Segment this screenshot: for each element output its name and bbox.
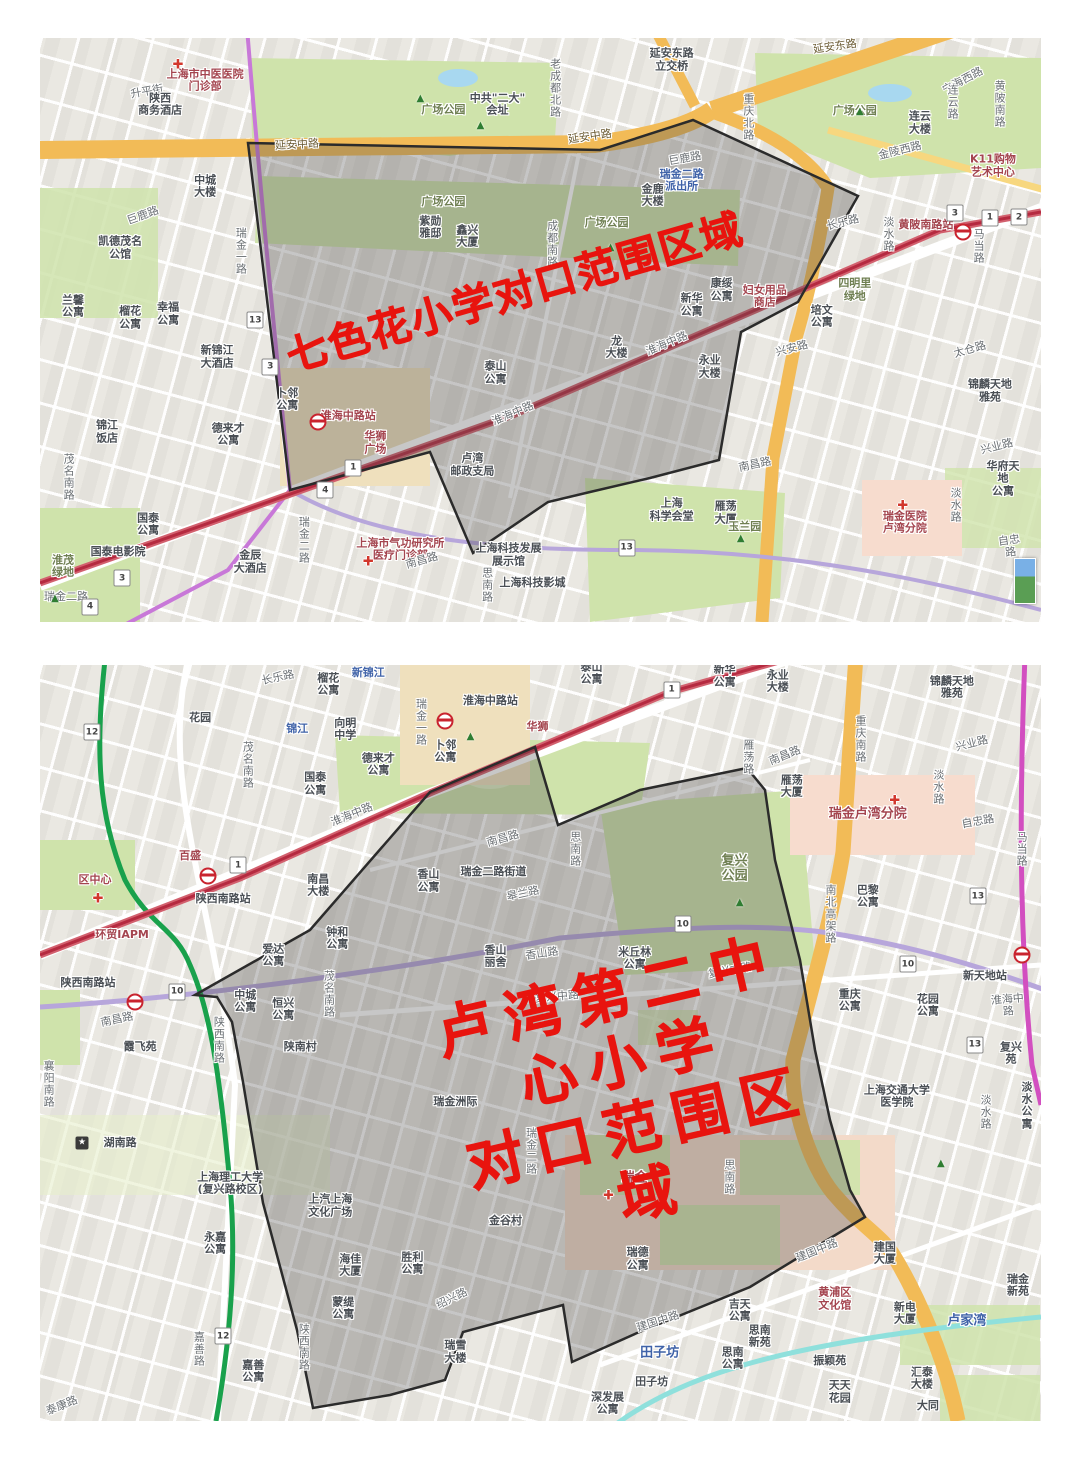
map-label: 霞飞苑 bbox=[124, 1041, 157, 1053]
map-label: 淡水路 bbox=[882, 216, 894, 252]
map-label: 广场公园 bbox=[421, 104, 465, 116]
metro-line-badge: 2 bbox=[1010, 209, 1027, 226]
map-label: 海佳 大厦 bbox=[339, 1254, 361, 1279]
map-label: 瑞金 新苑 bbox=[1007, 1273, 1029, 1298]
map-label: 马当路 bbox=[1015, 831, 1027, 867]
map-label: 延安东路 立交桥 bbox=[650, 48, 694, 73]
map-label: 淮海中路 bbox=[990, 992, 1025, 1019]
map-label: 淮海中路 bbox=[330, 801, 375, 829]
map-label: 思南 公寓 bbox=[722, 1347, 744, 1372]
map-label: 黄陂南路 bbox=[993, 80, 1005, 128]
landmark-star-icon: ★ bbox=[76, 1136, 89, 1149]
map-label: 老成都北路 bbox=[548, 58, 560, 118]
map-label: 国泰 公寓 bbox=[137, 513, 159, 538]
map-label: 钟和 公寓 bbox=[326, 926, 348, 951]
tree-icon: ▲ bbox=[736, 898, 744, 908]
map-label: 兰馨 公寓 bbox=[62, 294, 84, 319]
map-label: 华府天地 公寓 bbox=[984, 460, 1022, 497]
map-label: 建国 大厦 bbox=[874, 1242, 896, 1267]
metro-line-badge: 13 bbox=[969, 888, 986, 905]
map-label: 大同 bbox=[917, 1400, 939, 1412]
hospital-cross-icon: ✚ bbox=[93, 892, 104, 905]
map-label: 连云路 bbox=[946, 84, 958, 120]
map-label: 金陵西路 bbox=[877, 139, 923, 162]
metro-station-icon bbox=[127, 994, 144, 1011]
map-label: 复兴苑 bbox=[996, 1041, 1026, 1066]
map-label: 瑞金二路 bbox=[297, 516, 309, 564]
map-label: 自忠路 bbox=[961, 813, 996, 831]
map-label: 嘉善 公寓 bbox=[242, 1360, 264, 1385]
map-label: 泰山 公寓 bbox=[581, 665, 603, 686]
street-photo-thumbnail bbox=[1014, 558, 1036, 604]
map-label: 德来才 公寓 bbox=[362, 752, 395, 777]
map-label: 百盛 bbox=[179, 849, 201, 861]
map-label: 兴业路 bbox=[979, 437, 1014, 457]
map-label: 淡水路 bbox=[949, 487, 961, 523]
map-label: 思南路 bbox=[480, 567, 492, 603]
map-label: 上海科技发展 展示馆 bbox=[475, 543, 541, 568]
map-label: 瑞德 公寓 bbox=[627, 1247, 649, 1272]
map-label: 新电 大厦 bbox=[894, 1301, 916, 1326]
map-label: 延安东路 bbox=[812, 38, 857, 56]
map-label: 淮海中路站 bbox=[321, 410, 376, 422]
map-label: 蒙缇 公寓 bbox=[332, 1297, 354, 1322]
map-label: 陕南村 bbox=[284, 1041, 317, 1053]
map-label: 长乐路 bbox=[825, 213, 860, 233]
map-label: 延安中路 bbox=[567, 128, 612, 146]
map-label: 新华 公寓 bbox=[681, 293, 703, 318]
map-label: 卢湾 邮政支局 bbox=[450, 453, 494, 478]
map-label: 泰山 公寓 bbox=[484, 361, 506, 386]
map-label: 香山 丽舍 bbox=[484, 945, 506, 970]
metro-line-badge: 3 bbox=[114, 570, 131, 587]
map-label: 思南 新苑 bbox=[749, 1325, 771, 1350]
map-label: 瑞金一路 bbox=[234, 227, 246, 275]
map-label: 永嘉 公寓 bbox=[204, 1232, 226, 1257]
map-label: 田子坊 bbox=[635, 1376, 668, 1388]
tree-icon: ▲ bbox=[477, 121, 485, 131]
map-label: 南昌路 bbox=[486, 828, 521, 849]
map-label: 南昌路 bbox=[767, 744, 802, 768]
metro-line-badge: 10 bbox=[169, 983, 186, 1000]
metro-line-badge: 4 bbox=[82, 598, 99, 615]
map-label: 嘉善路 bbox=[192, 1331, 204, 1367]
map-label: 金辰 大酒店 bbox=[234, 550, 267, 575]
hospital-cross-icon: ✚ bbox=[363, 555, 374, 568]
hospital-cross-icon: ✚ bbox=[889, 795, 900, 808]
map-image-top[interactable]: 升平街上海市中医医院 门诊部陕西 商务酒店延安中路延安中路中城 大楼巨鹿路凯德茂… bbox=[40, 38, 1041, 622]
map-label: 巴黎 公寓 bbox=[857, 885, 879, 910]
map-label: 锦江 bbox=[286, 723, 308, 735]
metro-station-icon bbox=[437, 712, 454, 729]
tree-icon: ▲ bbox=[467, 732, 475, 742]
map-label: 淮海中路站 bbox=[463, 695, 518, 707]
metro-line-badge: 13 bbox=[966, 1036, 983, 1053]
map-label: 花园 bbox=[189, 712, 211, 724]
map-image-bottom[interactable]: 长乐路榴花 公寓新锦江花园锦江向明 中学德来才 公寓茂名南路国泰 公寓淮海中路百… bbox=[40, 665, 1041, 1421]
metro-station-icon bbox=[954, 223, 971, 240]
map-label: 马当路 bbox=[972, 228, 984, 264]
map-label: 国泰电影院 bbox=[91, 546, 146, 558]
map-label: 上海交通大学 医学院 bbox=[864, 1084, 930, 1109]
map-label: 陕西南路站 bbox=[61, 976, 116, 988]
metro-line-badge: 10 bbox=[674, 916, 691, 933]
map-label: 黄浦区 文化馆 bbox=[818, 1287, 851, 1312]
map-label: 襄阳南路 bbox=[42, 1060, 54, 1108]
map-labels-layer: 升平街上海市中医医院 门诊部陕西 商务酒店延安中路延安中路中城 大楼巨鹿路凯德茂… bbox=[40, 38, 1041, 622]
map-label: 思南路 bbox=[568, 831, 580, 867]
map-label: 上海 科学会堂 bbox=[650, 498, 694, 523]
metro-line-badge: 3 bbox=[946, 205, 963, 222]
map-label: 培文 公寓 bbox=[811, 305, 833, 330]
map-label: 淡水路 bbox=[979, 1094, 991, 1130]
map-label: 瑞金二路 派出所 bbox=[660, 169, 704, 194]
map-label: 瑞金一路 bbox=[414, 698, 426, 746]
map-label: 环贸IAPM bbox=[95, 929, 149, 941]
map-label: 延安中路 bbox=[275, 138, 320, 153]
metro-line-badge: 12 bbox=[215, 1328, 232, 1345]
tree-icon: ▲ bbox=[417, 94, 425, 104]
map-label: 华狮 广场 bbox=[364, 431, 386, 456]
map-label: 建国中路 bbox=[794, 1237, 839, 1265]
map-label: 永业 大楼 bbox=[767, 669, 789, 694]
metro-line-badge: 3 bbox=[262, 358, 279, 375]
map-label: 陕西南路 bbox=[212, 1016, 224, 1064]
metro-line-badge: 13 bbox=[618, 539, 635, 556]
map-label: 南昌 大楼 bbox=[307, 873, 329, 898]
map-label: 淮茂 绿地 bbox=[52, 555, 74, 580]
map-label: 淡水路 bbox=[932, 769, 944, 805]
map-label: 复兴 公园 bbox=[722, 855, 748, 884]
map-label: 淮海中路 bbox=[644, 330, 689, 359]
map-label: 锦麟天地 雅苑 bbox=[930, 675, 974, 700]
map-label: 连云 大楼 bbox=[909, 111, 931, 136]
map-label: 金鹿 大楼 bbox=[642, 183, 664, 208]
map-label: 广场公园 bbox=[833, 105, 877, 117]
metro-station-icon bbox=[1013, 947, 1030, 964]
map-label: 卢家湾 bbox=[947, 1315, 986, 1330]
map-label: 天天 花园 bbox=[829, 1380, 851, 1405]
map-label: 新华 公寓 bbox=[714, 665, 736, 689]
map-label: 巨鹿路 bbox=[667, 151, 702, 169]
map-label: 汇泰 大楼 bbox=[911, 1366, 933, 1391]
map-label: 中城 大楼 bbox=[194, 175, 216, 200]
map-label: 上海科技影城 bbox=[499, 577, 565, 589]
map-label: 淮海中路 bbox=[491, 399, 536, 428]
map-label: 吉天 公寓 bbox=[729, 1298, 751, 1323]
map-label: 爱达 公寓 bbox=[262, 944, 284, 969]
map-label: 新天地站 bbox=[963, 970, 1007, 982]
map-label: 卜邻 公寓 bbox=[276, 388, 298, 413]
map-label: 太仓路 bbox=[952, 340, 987, 361]
map-label: 建国中路 bbox=[635, 1309, 681, 1334]
map-label: 龙 大楼 bbox=[606, 335, 628, 360]
map-label: 广场公园 bbox=[421, 195, 465, 207]
map-label: 向明 中学 bbox=[334, 718, 356, 743]
map-label: 振颖苑 bbox=[813, 1355, 846, 1367]
map-label: 凯德茂名 公馆 bbox=[98, 236, 142, 261]
map-label: 兴业路 bbox=[954, 734, 989, 754]
map-label: 瑞金卢湾分院 bbox=[829, 807, 907, 822]
map-label: 瑞金二路街道 bbox=[460, 866, 526, 878]
tree-icon: ▲ bbox=[937, 1159, 945, 1169]
metro-line-badge: 4 bbox=[317, 482, 334, 499]
map-label: 锦江 饭店 bbox=[96, 420, 118, 445]
map-label: 锦麟天地 雅苑 bbox=[968, 379, 1012, 404]
map-label: 香山路 bbox=[524, 945, 558, 962]
map-label: 卜邻 公寓 bbox=[434, 740, 456, 765]
map-label: 雁荡路 bbox=[742, 739, 754, 775]
map-label: 茂名南路 bbox=[62, 453, 74, 501]
map-label: 榴花 公寓 bbox=[317, 672, 339, 697]
map-label: 榴花 公寓 bbox=[119, 306, 141, 331]
map-label: 南北高架路 bbox=[824, 884, 836, 944]
map-label: 绍兴路 bbox=[435, 1287, 470, 1313]
map-label: 康绥 公寓 bbox=[711, 278, 733, 303]
map-label: 茂名南路 bbox=[322, 970, 334, 1018]
map-label: 国泰 公寓 bbox=[304, 772, 326, 797]
map-label: 淡水 公寓 bbox=[1020, 1081, 1034, 1130]
map-label: 紫勋 雅邸 bbox=[419, 215, 441, 240]
map-label: 田子坊 bbox=[640, 1346, 679, 1361]
map-label: 瑞雪 大楼 bbox=[444, 1340, 466, 1365]
metro-line-badge: 1 bbox=[663, 681, 680, 698]
map-label: 陕西南路站 bbox=[196, 893, 251, 905]
map-label: 鑫兴 大厦 bbox=[456, 224, 478, 249]
metro-line-badge: 1 bbox=[981, 209, 998, 226]
map-label: 玉兰园 bbox=[728, 521, 761, 533]
hospital-cross-icon: ✚ bbox=[173, 58, 184, 71]
map-label: 重庆北路 bbox=[742, 93, 754, 141]
tree-icon: ▲ bbox=[737, 534, 745, 544]
map-label: 深发展 公寓 bbox=[591, 1391, 624, 1416]
map-label: 重庆南路 bbox=[854, 715, 866, 763]
map-label: 皋兰路 bbox=[506, 885, 541, 904]
metro-station-icon bbox=[200, 867, 217, 884]
tree-icon: ▲ bbox=[856, 107, 864, 117]
map-label: 永业 大楼 bbox=[699, 355, 721, 380]
map-label: 妇女用品 商店 bbox=[743, 284, 787, 309]
map-label: 新锦江 bbox=[352, 667, 385, 679]
map-label: 花园 公寓 bbox=[917, 994, 939, 1019]
map-label: 香山 公寓 bbox=[417, 869, 439, 894]
metro-station-icon bbox=[310, 414, 327, 431]
map-label: 区中心 bbox=[79, 874, 112, 886]
map-label: 华狮 bbox=[526, 721, 548, 733]
map-label: 德来才 公寓 bbox=[212, 423, 245, 448]
map-label: 重庆 公寓 bbox=[839, 988, 861, 1013]
map-label: 兴安路 bbox=[774, 338, 809, 358]
map-label: 泰康路 bbox=[44, 1394, 79, 1418]
map-label: 南昌路 bbox=[737, 456, 772, 475]
map-label: 黄陂南路站 bbox=[898, 219, 953, 231]
map-label: 南昌路 bbox=[100, 1010, 135, 1029]
map-label: 陕西 商务酒店 bbox=[138, 93, 182, 118]
map-label: 新锦江 大酒店 bbox=[201, 345, 234, 370]
map-label: 幸福 公寓 bbox=[157, 302, 179, 327]
map-label: 长乐路 bbox=[261, 668, 296, 687]
map-label: 中城 公寓 bbox=[234, 990, 256, 1015]
map-label: 湖南路 bbox=[104, 1137, 137, 1149]
metro-line-badge: 12 bbox=[84, 724, 101, 741]
map-label: 巨鹿路 bbox=[125, 205, 160, 228]
map-label: 上海理工大学 (复兴路校区) bbox=[197, 1171, 263, 1196]
hospital-cross-icon: ✚ bbox=[897, 500, 908, 513]
metro-line-badge: 10 bbox=[899, 956, 916, 973]
map-label: 茂名南路 bbox=[241, 741, 253, 789]
map-label: 上汽上海 文化广场 bbox=[308, 1194, 352, 1219]
map-label: K11购物 艺术中心 bbox=[970, 154, 1016, 179]
map-label: 雁荡 大厦 bbox=[781, 774, 803, 799]
tree-icon: ▲ bbox=[51, 594, 59, 604]
map-label: 恒兴 公寓 bbox=[272, 997, 294, 1022]
map-label: 陕西南路 bbox=[297, 1323, 309, 1371]
map-label: 瑞金医院 卢湾分院 bbox=[883, 510, 927, 535]
metro-line-badge: 1 bbox=[345, 459, 362, 476]
map-label: 胜利 公寓 bbox=[401, 1251, 423, 1276]
metro-line-badge: 1 bbox=[230, 857, 247, 874]
map-label: 中共"二大" 会址 bbox=[470, 93, 525, 118]
map-label: 四明里 绿地 bbox=[838, 278, 871, 303]
metro-line-badge: 13 bbox=[247, 312, 264, 329]
